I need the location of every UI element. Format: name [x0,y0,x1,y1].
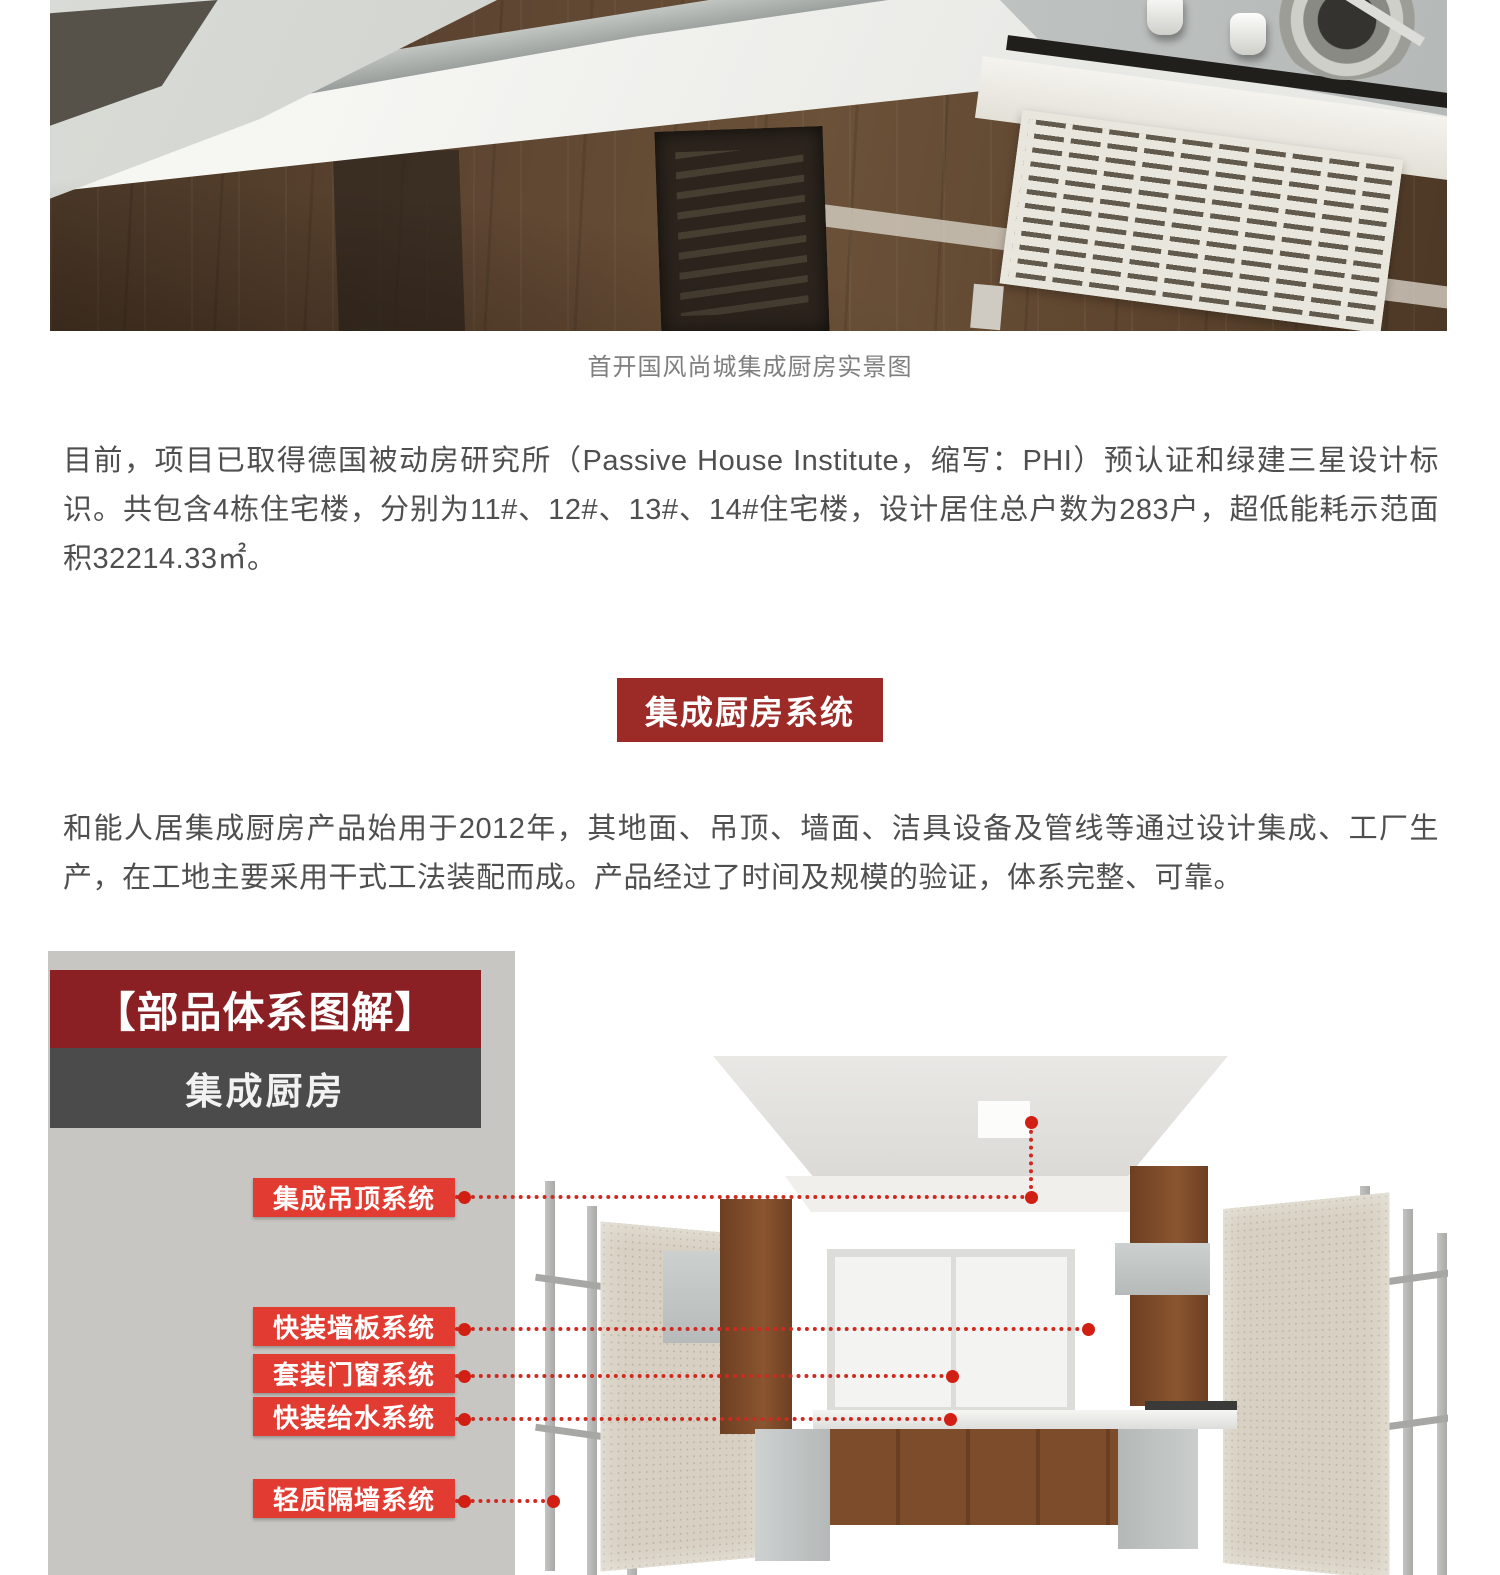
leader-line-water [455,1417,950,1421]
callout-water-system: 快装给水系统 [253,1397,455,1436]
infographic-title: 【部品体系图解】 [50,970,481,1048]
leader-dot [458,1370,471,1383]
wall-stud [1403,1209,1413,1575]
infographic-subtitle: 集成厨房 [50,1048,481,1128]
kitchen-window [827,1249,1075,1415]
ceiling-fascia [785,1176,1155,1212]
callout-wallboard-system: 快装墙板系统 [253,1307,455,1346]
leader-dot [1025,1191,1038,1204]
wall-panel-right [1223,1192,1390,1575]
leader-dot [946,1370,959,1383]
article-page: 首开国风尚城集成厨房实景图 目前，项目已取得德国被动房研究所（Passive H… [0,0,1500,1575]
leader-line-ceiling-vertical [1029,1122,1033,1197]
leader-dot [547,1495,560,1508]
range-hood [1115,1243,1210,1295]
kitchen-photo [50,0,1447,331]
kitchen-3d-render [515,951,1448,1575]
leader-dot [458,1495,471,1508]
window-mullion [951,1257,956,1407]
callout-doorwindow-system: 套装门窗系统 [253,1354,455,1393]
base-cabinet-side [755,1429,830,1561]
leader-dot [458,1413,471,1426]
leader-dot [1025,1116,1038,1129]
leader-dot [944,1413,957,1426]
callout-ceiling-system: 集成吊顶系统 [253,1178,455,1217]
upper-cabinet-wood-left [720,1199,792,1434]
wall-stud [587,1206,597,1575]
section-banner-wrap: 集成厨房系统 [0,678,1500,742]
photo-shading [50,0,1447,331]
leader-line-wallboard [455,1327,1088,1331]
leader-dot [458,1323,471,1336]
leader-line-doorwindow [455,1374,952,1378]
leader-dot [1082,1323,1095,1336]
paragraph-project-certification: 目前，项目已取得德国被动房研究所（Passive House Institute… [63,437,1439,584]
wall-stud [1437,1233,1447,1575]
callout-partition-system: 轻质隔墙系统 [253,1479,455,1518]
photo-caption: 首开国风尚城集成厨房实景图 [0,347,1500,382]
paragraph-product-history: 和能人居集成厨房产品始用于2012年，其地面、吊顶、墙面、洁具设备及管线等通过设… [63,805,1439,903]
ceiling-panel [678,1056,1263,1176]
base-cabinet-side [1118,1429,1198,1549]
base-cabinet-wood [830,1429,1118,1525]
section-title: 集成厨房系统 [617,678,883,742]
ceiling-light [978,1101,1030,1138]
leader-dot [458,1191,471,1204]
component-system-infographic: 【部品体系图解】 集成厨房 集成吊顶系统 快装墙板系统 套装门窗系统 快装给水系… [48,951,1448,1575]
leader-line-ceiling [455,1195,1033,1199]
